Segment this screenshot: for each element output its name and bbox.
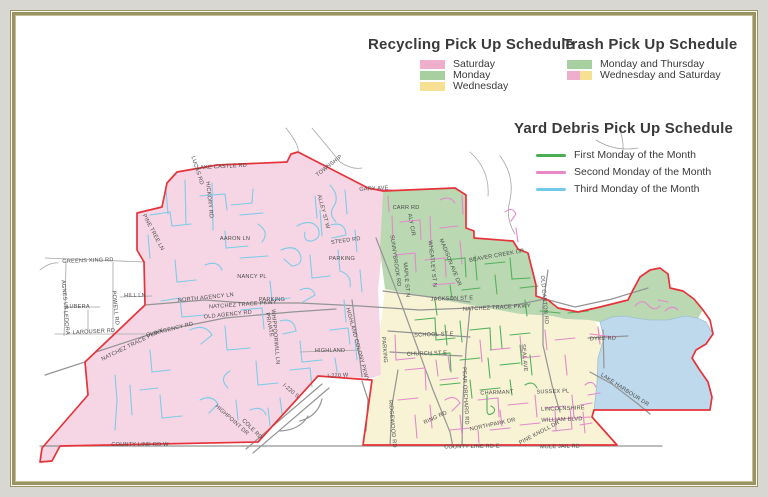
- legend-row: Monday and Thursday: [567, 59, 737, 69]
- road-label: NANCY PL: [237, 274, 266, 280]
- legend-label: Wednesday and Saturday: [600, 70, 721, 80]
- recycling-legend: Recycling Pick Up Schedule Saturday Mond…: [368, 36, 574, 92]
- trash-legend: Trash Pick Up Schedule Monday and Thursd…: [563, 36, 737, 81]
- road-label: I-220 W: [327, 372, 349, 379]
- monday-swatch: [420, 71, 445, 80]
- first-monday-line-swatch: [536, 154, 566, 157]
- third-monday-line-swatch: [536, 188, 566, 191]
- road-label: LEDORA: [62, 311, 71, 336]
- legend-label: Saturday: [453, 59, 495, 69]
- road-label: CARR RD: [393, 205, 420, 211]
- legend-row: Saturday: [420, 59, 574, 69]
- legend-label: Monday: [453, 70, 490, 80]
- trash-legend-title: Trash Pick Up Schedule: [563, 36, 737, 53]
- wednesday-swatch: [420, 82, 445, 91]
- road-label: LAROUSER RD: [73, 328, 116, 336]
- road-label: SUSSEX PL: [536, 388, 569, 395]
- road-label: CHARMANT: [480, 389, 514, 396]
- monday-thursday-swatch: [567, 60, 592, 69]
- road-label: GREENS XING RD: [62, 257, 113, 265]
- schedule-map-page: { "colors": { "outer_bg": "#d8d7d2", "fr…: [0, 0, 768, 497]
- legend-label: Third Monday of the Month: [574, 184, 699, 194]
- road-label: AARON LN: [220, 236, 250, 242]
- road-label: MULE JAIL RD: [540, 444, 580, 451]
- road-label: HILL LN: [124, 293, 146, 299]
- recycling-legend-title: Recycling Pick Up Schedule: [368, 36, 574, 53]
- road-label: COUNTY LINE RD W: [111, 442, 169, 448]
- road-label: PARKING: [329, 256, 355, 262]
- yard-debris-legend: Yard Debris Pick Up Schedule First Monda…: [514, 120, 733, 198]
- road-label: COUNTY LINE RD E: [444, 444, 500, 451]
- road-label: LUBERA: [66, 304, 90, 310]
- legend-label: Monday and Thursday: [600, 59, 704, 69]
- legend-label: Wednesday: [453, 81, 508, 91]
- yard-debris-legend-title: Yard Debris Pick Up Schedule: [514, 120, 733, 137]
- swatch-half-pink: [567, 71, 580, 80]
- legend-row: Second Monday of the Month: [536, 164, 733, 180]
- legend-row: Wednesday: [420, 81, 574, 91]
- legend-label: Second Monday of the Month: [574, 167, 711, 177]
- legend-row: Monday: [420, 70, 574, 80]
- road-label: PARKING: [259, 297, 285, 303]
- legend-row: First Monday of the Month: [536, 147, 733, 163]
- wednesday-saturday-swatch: [567, 71, 592, 80]
- legend-row: Third Monday of the Month: [536, 181, 733, 197]
- second-monday-line-swatch: [536, 171, 566, 174]
- road-label: DYKE RD: [590, 336, 616, 343]
- saturday-swatch: [420, 60, 445, 69]
- road-label: HIGHLAND: [315, 348, 346, 354]
- legend-row: Wednesday and Saturday: [567, 70, 737, 80]
- swatch-half-yellow: [580, 71, 593, 80]
- legend-label: First Monday of the Month: [574, 150, 696, 160]
- road-label: POWELL RD: [110, 290, 120, 325]
